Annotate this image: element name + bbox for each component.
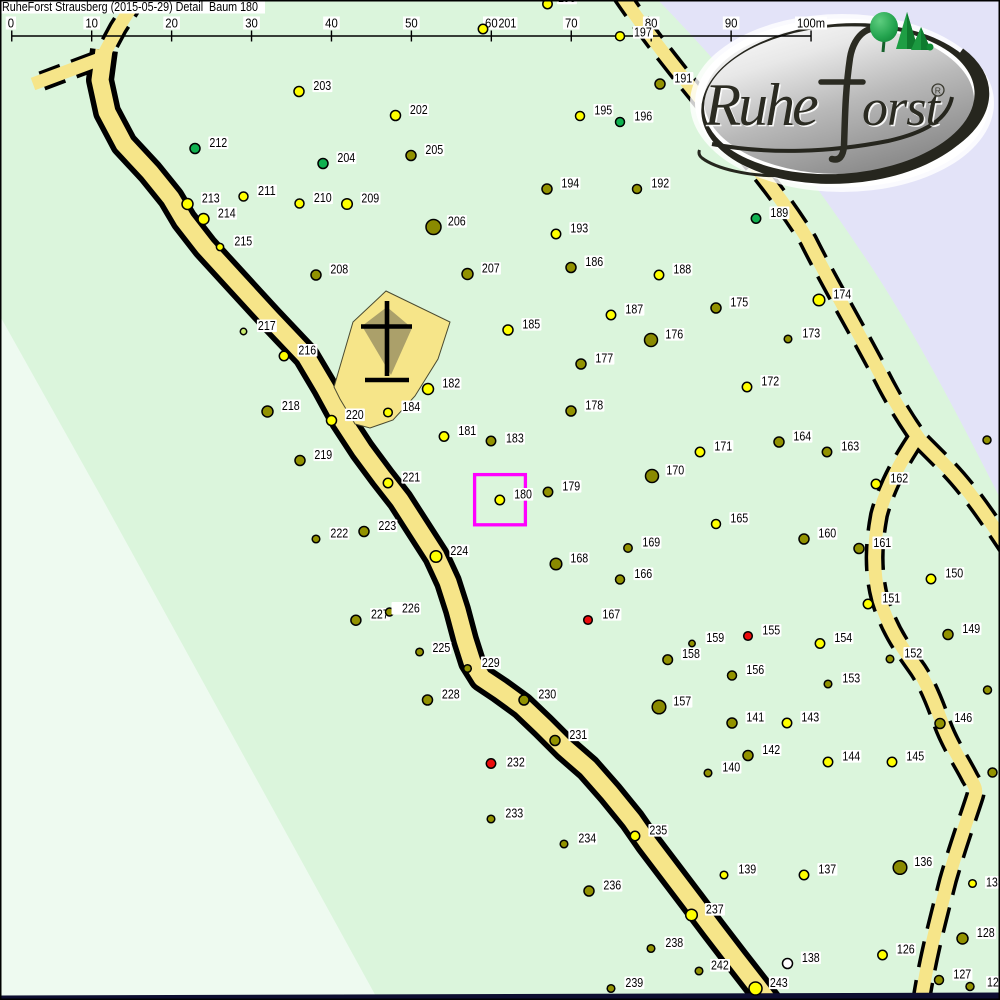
- svg-text:orst: orst: [862, 80, 941, 137]
- svg-text:233: 233: [505, 806, 523, 821]
- svg-text:50: 50: [405, 17, 418, 31]
- svg-text:138: 138: [802, 950, 820, 965]
- svg-text:40: 40: [325, 17, 338, 31]
- svg-text:236: 236: [603, 878, 621, 893]
- svg-text:192: 192: [651, 176, 669, 191]
- svg-text:169: 169: [642, 535, 660, 550]
- svg-text:136: 136: [914, 854, 932, 869]
- svg-text:212: 212: [209, 135, 227, 150]
- svg-text:161: 161: [873, 535, 891, 550]
- svg-text:144: 144: [842, 749, 860, 764]
- svg-text:215: 215: [234, 234, 252, 249]
- svg-text:191: 191: [674, 71, 692, 86]
- svg-text:223: 223: [378, 518, 396, 533]
- svg-text:239: 239: [625, 975, 643, 990]
- svg-text:181: 181: [458, 423, 476, 438]
- svg-text:150: 150: [945, 566, 963, 581]
- svg-text:146: 146: [954, 710, 972, 725]
- svg-text:176: 176: [665, 327, 683, 342]
- svg-text:152: 152: [904, 646, 922, 661]
- svg-text:206: 206: [448, 214, 466, 229]
- svg-text:232: 232: [507, 755, 525, 770]
- svg-text:142: 142: [762, 742, 780, 757]
- svg-text:10: 10: [85, 17, 98, 31]
- svg-text:226: 226: [402, 601, 420, 616]
- svg-text:204: 204: [337, 150, 355, 165]
- svg-text:229: 229: [482, 655, 500, 670]
- svg-text:175: 175: [730, 295, 748, 310]
- svg-text:180: 180: [514, 487, 532, 502]
- svg-text:70: 70: [565, 17, 578, 31]
- svg-text:234: 234: [578, 831, 596, 846]
- svg-text:220: 220: [346, 407, 364, 422]
- svg-text:179: 179: [562, 479, 580, 494]
- svg-text:151: 151: [882, 591, 900, 606]
- svg-text:RuheForst Strausberg (2015-05-: RuheForst Strausberg (2015-05-29) Detail…: [2, 0, 258, 14]
- svg-text:208: 208: [330, 262, 348, 277]
- svg-text:230: 230: [538, 687, 556, 702]
- svg-text:159: 159: [706, 630, 724, 645]
- svg-text:123: 123: [987, 975, 1000, 990]
- svg-text:238: 238: [665, 935, 683, 950]
- svg-text:242: 242: [711, 958, 729, 973]
- svg-text:216: 216: [298, 343, 316, 358]
- svg-text:157: 157: [673, 694, 691, 709]
- svg-text:189: 189: [770, 205, 788, 220]
- svg-text:172: 172: [761, 374, 779, 389]
- svg-text:187: 187: [625, 302, 643, 317]
- svg-text:178: 178: [585, 398, 603, 413]
- svg-text:214: 214: [218, 206, 236, 221]
- svg-text:145: 145: [906, 749, 924, 764]
- svg-text:128: 128: [977, 925, 995, 940]
- svg-text:211: 211: [258, 183, 276, 198]
- svg-text:194: 194: [561, 176, 579, 191]
- svg-text:196: 196: [634, 109, 652, 124]
- svg-text:219: 219: [314, 447, 332, 462]
- svg-text:164: 164: [793, 429, 811, 444]
- svg-text:201: 201: [499, 16, 517, 31]
- svg-text:228: 228: [442, 687, 460, 702]
- svg-text:140: 140: [722, 760, 740, 775]
- svg-text:171: 171: [714, 439, 732, 454]
- svg-text:170: 170: [666, 463, 684, 478]
- svg-text:225: 225: [433, 640, 451, 655]
- svg-text:202: 202: [410, 102, 428, 117]
- svg-text:143: 143: [801, 710, 819, 725]
- svg-text:154: 154: [834, 630, 852, 645]
- svg-text:186: 186: [585, 254, 603, 269]
- svg-text:184: 184: [402, 399, 420, 414]
- svg-text:209: 209: [361, 191, 379, 206]
- svg-text:0: 0: [8, 17, 14, 31]
- svg-text:195: 195: [594, 103, 612, 118]
- svg-text:243: 243: [770, 975, 788, 990]
- svg-text:185: 185: [522, 317, 540, 332]
- svg-text:156: 156: [746, 662, 764, 677]
- svg-text:158: 158: [682, 646, 700, 661]
- svg-text:182: 182: [442, 376, 460, 391]
- svg-text:153: 153: [842, 671, 860, 686]
- svg-text:177: 177: [595, 351, 613, 366]
- svg-text:224: 224: [450, 543, 468, 558]
- svg-text:237: 237: [706, 902, 724, 917]
- svg-text:137: 137: [818, 862, 836, 877]
- svg-text:213: 213: [202, 191, 220, 206]
- svg-text:207: 207: [482, 261, 500, 276]
- svg-text:139: 139: [738, 862, 756, 877]
- svg-text:20: 20: [165, 17, 178, 31]
- svg-text:135: 135: [986, 875, 1000, 890]
- svg-text:210: 210: [314, 190, 332, 205]
- svg-text:183: 183: [506, 431, 524, 446]
- svg-text:205: 205: [425, 142, 443, 157]
- svg-text:Ruhe: Ruhe: [704, 72, 819, 138]
- svg-text:141: 141: [746, 710, 764, 725]
- svg-text:193: 193: [570, 221, 588, 236]
- svg-text:100m: 100m: [797, 17, 825, 31]
- svg-text:127: 127: [953, 967, 971, 982]
- svg-text:173: 173: [802, 326, 820, 341]
- svg-text:167: 167: [602, 607, 620, 622]
- svg-text:30: 30: [245, 17, 258, 31]
- svg-text:174: 174: [833, 287, 851, 302]
- svg-text:218: 218: [282, 398, 300, 413]
- svg-text:197: 197: [634, 25, 652, 40]
- svg-text:165: 165: [730, 511, 748, 526]
- svg-text:231: 231: [569, 727, 587, 742]
- svg-text:217: 217: [258, 318, 276, 333]
- svg-text:222: 222: [330, 526, 348, 541]
- svg-text:188: 188: [673, 262, 691, 277]
- svg-text:R: R: [935, 86, 941, 96]
- svg-text:163: 163: [841, 439, 859, 454]
- svg-text:235: 235: [649, 823, 667, 838]
- svg-text:221: 221: [402, 470, 420, 485]
- svg-text:166: 166: [634, 566, 652, 581]
- svg-text:162: 162: [890, 471, 908, 486]
- svg-text:155: 155: [762, 623, 780, 638]
- svg-text:90: 90: [725, 17, 738, 31]
- svg-text:203: 203: [313, 78, 331, 93]
- svg-text:168: 168: [570, 551, 588, 566]
- svg-text:126: 126: [897, 942, 915, 957]
- svg-text:160: 160: [818, 526, 836, 541]
- svg-text:149: 149: [962, 621, 980, 636]
